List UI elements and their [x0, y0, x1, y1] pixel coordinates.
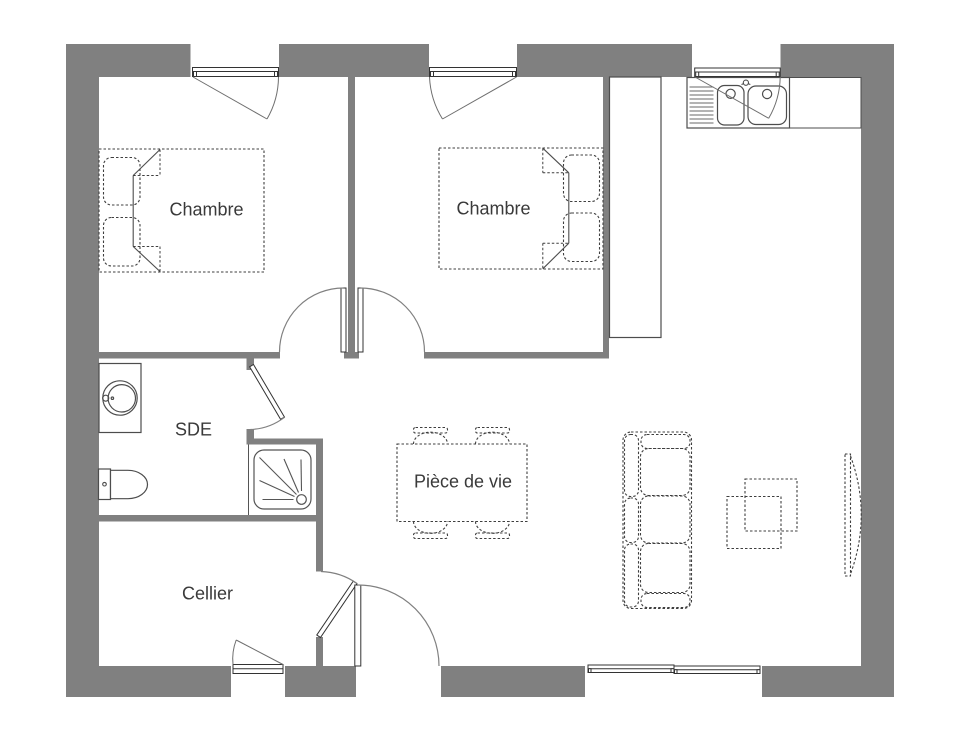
svg-text:SDE: SDE — [175, 420, 212, 440]
svg-text:Cellier: Cellier — [182, 584, 233, 604]
svg-text:Chambre: Chambre — [456, 199, 530, 219]
svg-text:Pièce de vie: Pièce de vie — [414, 472, 512, 492]
svg-text:Chambre: Chambre — [169, 200, 243, 220]
